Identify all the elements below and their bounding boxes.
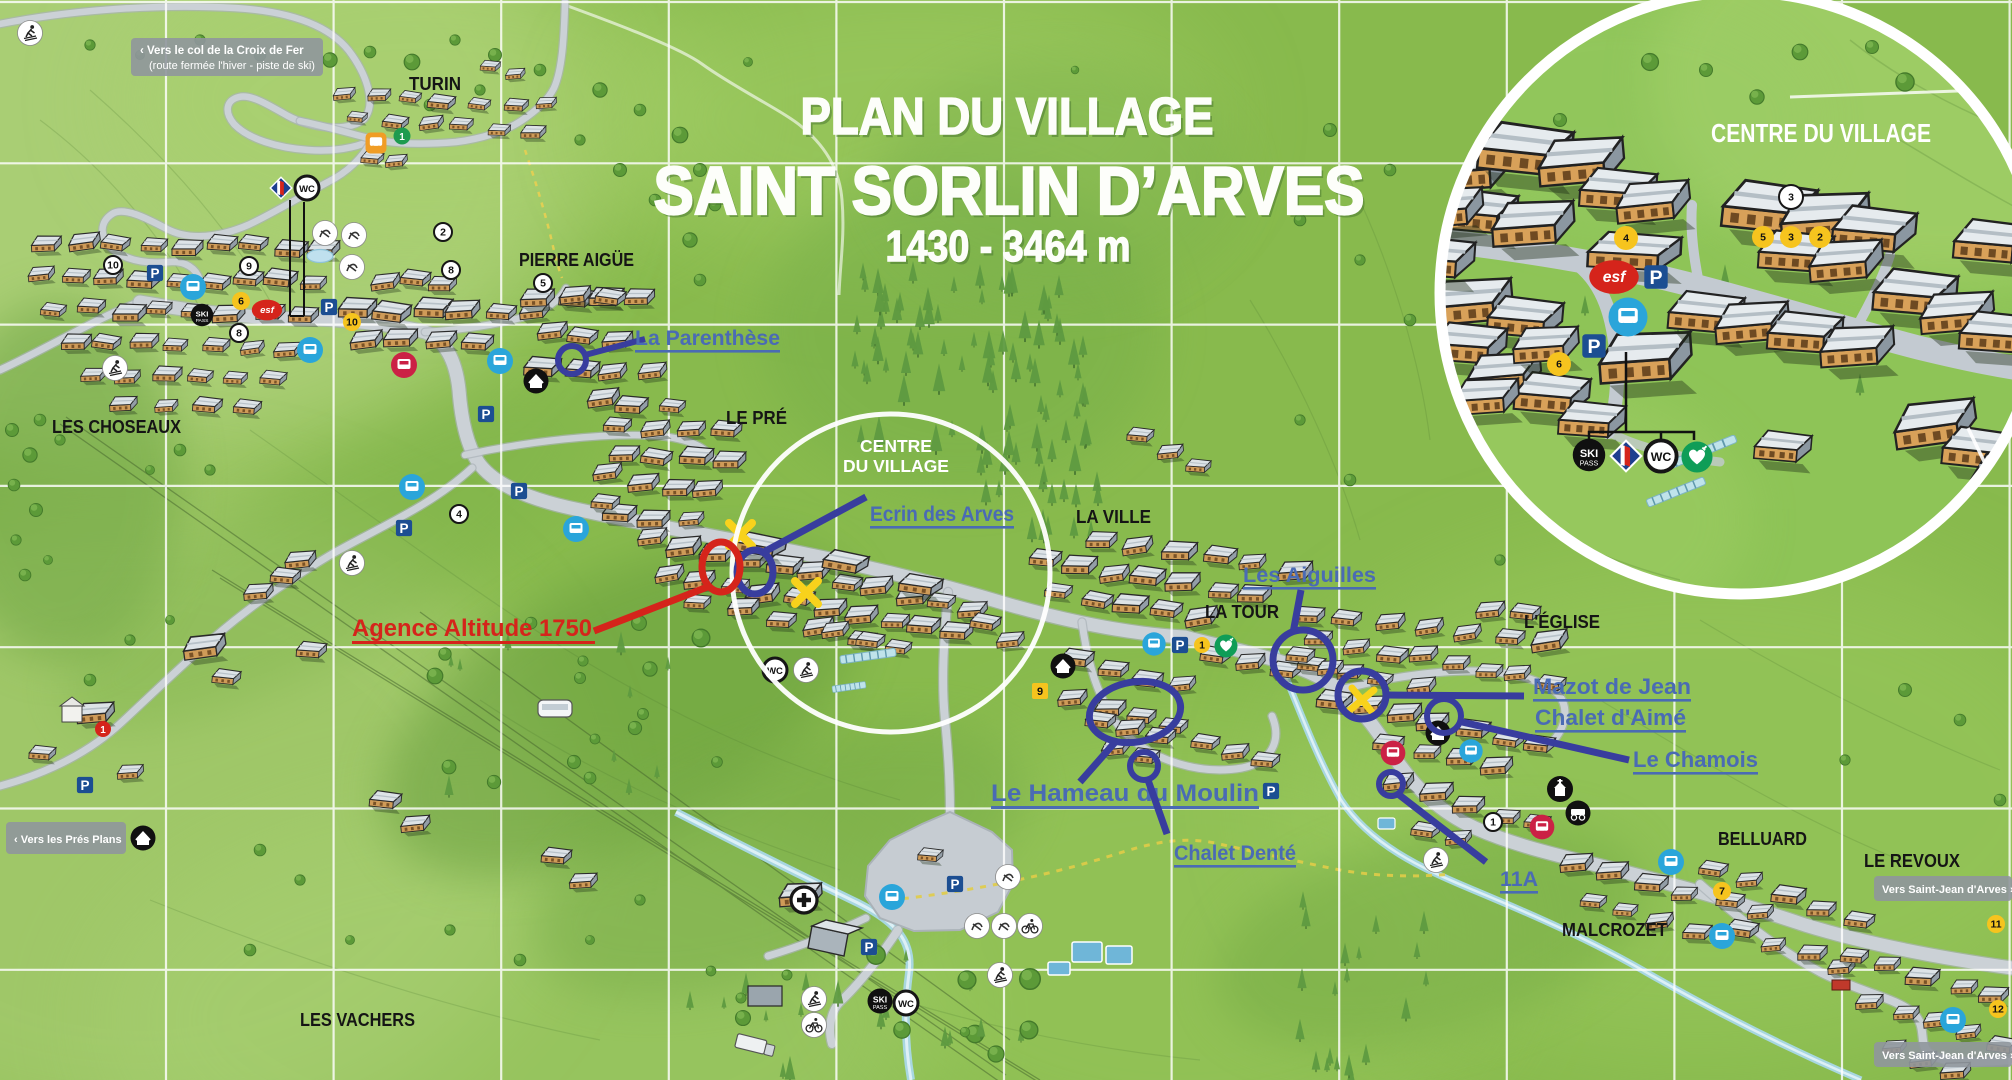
svg-text:LE REVOUX: LE REVOUX (1864, 851, 1960, 871)
svg-text:1: 1 (1199, 640, 1205, 652)
svg-text:4: 4 (1623, 233, 1629, 245)
svg-text:10: 10 (346, 317, 358, 329)
svg-text:TURIN: TURIN (409, 74, 461, 94)
svg-text:Vers Saint-Jean d'Arves ›: Vers Saint-Jean d'Arves › (1882, 884, 2012, 896)
svg-text:8: 8 (448, 265, 454, 277)
svg-text:BELLUARD: BELLUARD (1718, 829, 1807, 849)
svg-text:‹ Vers le col de la Croix de: ‹ Vers le col de la Croix de Fer (140, 45, 304, 57)
svg-text:LES VACHERS: LES VACHERS (300, 1010, 415, 1030)
svg-text:Le Chamois: Le Chamois (1633, 747, 1758, 772)
svg-text:Vers Saint-Jean d'Arves ›: Vers Saint-Jean d'Arves › (1882, 1050, 2012, 1062)
svg-text:8: 8 (236, 328, 242, 340)
svg-text:CENTRE DU VILLAGE: CENTRE DU VILLAGE (1711, 118, 1931, 148)
svg-text:DU VILLAGE: DU VILLAGE (843, 456, 949, 476)
svg-text:11: 11 (1990, 919, 2001, 931)
svg-text:Ecrin des Arves: Ecrin des Arves (870, 503, 1014, 526)
svg-text:2: 2 (440, 227, 446, 239)
svg-text:6: 6 (238, 296, 244, 308)
svg-text:5: 5 (1760, 232, 1766, 244)
svg-text:Chalet Denté: Chalet Denté (1174, 842, 1296, 865)
svg-text:L'ÉGLISE: L'ÉGLISE (1524, 611, 1600, 632)
svg-text:LE PRÉ: LE PRÉ (726, 407, 787, 428)
svg-text:SAINT SORLIN D’ARVES: SAINT SORLIN D’ARVES (654, 153, 1365, 229)
svg-text:3: 3 (1788, 232, 1794, 244)
svg-text:Le Hameau du Moulin: Le Hameau du Moulin (991, 780, 1259, 807)
svg-text:4: 4 (456, 509, 462, 521)
svg-text:LA TOUR: LA TOUR (1205, 602, 1279, 622)
svg-text:5: 5 (540, 278, 546, 290)
svg-text:MALCROZET: MALCROZET (1562, 920, 1667, 940)
svg-text:La Parenthèse: La Parenthèse (635, 327, 780, 350)
svg-text:Chalet d'Aimé: Chalet d'Aimé (1535, 705, 1686, 730)
svg-text:9: 9 (246, 261, 252, 273)
svg-text:PIERRE AIGÜE: PIERRE AIGÜE (519, 250, 634, 270)
svg-text:11A: 11A (1500, 868, 1538, 891)
svg-text:12: 12 (1992, 1004, 2004, 1016)
svg-text:CENTRE: CENTRE (860, 436, 932, 456)
svg-text:(route fermée l'hiver - piste: (route fermée l'hiver - piste de ski) (149, 60, 315, 72)
svg-text:1: 1 (1490, 817, 1496, 829)
svg-text:Mazot de Jean: Mazot de Jean (1533, 674, 1691, 699)
svg-text:1430 - 3464 m: 1430 - 3464 m (886, 222, 1131, 271)
svg-text:1: 1 (100, 725, 106, 736)
svg-text:LA VILLE: LA VILLE (1076, 507, 1151, 527)
svg-text:6: 6 (1556, 359, 1562, 371)
svg-text:10: 10 (107, 260, 119, 272)
svg-text:Agence Altitude 1750: Agence Altitude 1750 (352, 615, 592, 642)
svg-text:Les Aiguilles: Les Aiguilles (1243, 564, 1376, 587)
svg-text:3: 3 (1788, 192, 1794, 204)
svg-text:‹ Vers les Prés Plans: ‹ Vers les Prés Plans (14, 834, 122, 846)
svg-text:9: 9 (1037, 686, 1043, 698)
svg-text:7: 7 (1719, 886, 1725, 898)
svg-text:PLAN DU VILLAGE: PLAN DU VILLAGE (801, 88, 1214, 146)
svg-text:LES CHOSEAUX: LES CHOSEAUX (52, 417, 181, 437)
svg-text:1: 1 (399, 132, 405, 143)
svg-text:2: 2 (1817, 232, 1823, 244)
